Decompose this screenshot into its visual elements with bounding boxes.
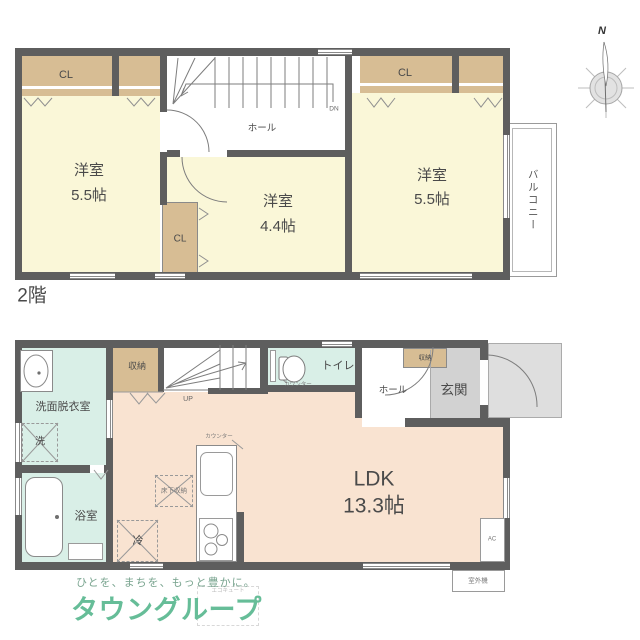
toilet-counter-strip: [270, 350, 276, 382]
window: [15, 478, 22, 515]
wall: [208, 388, 268, 394]
ac-label: AC: [488, 537, 496, 544]
floorplan-page: CL CL CL 洋室 5.5帖 洋室 4.4帖 洋室 5.5帖 ホール DN …: [0, 0, 640, 640]
kitchen-counter-label: カウンター: [205, 434, 233, 440]
wall: [15, 340, 488, 348]
stove: [199, 518, 233, 561]
entrance-door-opening: [480, 360, 488, 405]
door-opening: [90, 465, 104, 473]
floor1-plan: 洗面脱衣室 洗 浴室 収納 UP トイレ カウンター ホール 収納 玄関 LDK…: [0, 0, 640, 640]
logo-company-jp: タウングループ: [71, 588, 262, 627]
kitchen-sink: [200, 452, 233, 496]
storage-label: 収納: [419, 354, 432, 361]
toilet-label: トイレ: [322, 360, 355, 372]
window: [322, 341, 352, 347]
wall: [106, 348, 113, 562]
bath-vanity: [68, 543, 103, 560]
storage-label: 収納: [128, 362, 146, 372]
window: [503, 478, 510, 518]
sliding-door: [106, 400, 113, 438]
wall: [480, 343, 488, 360]
toilet-counter-label: カウンター: [284, 382, 312, 388]
wall: [355, 343, 362, 392]
wall: [355, 392, 362, 418]
bathtub: [25, 477, 63, 557]
ldk-name: LDK: [354, 467, 395, 490]
stairs-up-label: UP: [183, 396, 193, 404]
entrance-label: 玄関: [441, 384, 468, 399]
washer-label: 洗: [35, 437, 45, 448]
wall: [405, 418, 510, 427]
wall: [260, 343, 268, 392]
fridge-label: 冷: [133, 535, 144, 547]
washroom-label: 洗面脱衣室: [36, 401, 91, 413]
window: [15, 423, 22, 462]
town-group-logo: 1階 TOWN GROUP ひとを、まちを、もっと豊かに。 タウングループ: [0, 565, 640, 640]
hall-label: ホール: [379, 386, 408, 396]
wall: [236, 512, 244, 562]
ldk-size: 13.3帖: [343, 494, 405, 517]
porch-fill: [488, 343, 562, 418]
sink-cabinet: [20, 350, 53, 392]
wall: [158, 348, 164, 392]
stairs1f-fill: [163, 345, 260, 390]
underfloor-storage-label: 床下収納: [161, 487, 187, 494]
wall: [480, 405, 488, 427]
bathroom-label: 浴室: [75, 511, 98, 524]
